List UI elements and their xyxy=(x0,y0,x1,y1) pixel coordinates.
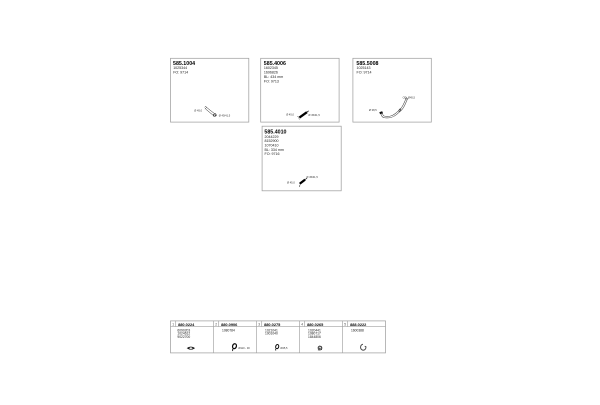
svg-text:1001040: 1001040 xyxy=(265,332,278,336)
svg-text:880.0265: 880.0265 xyxy=(307,322,324,327)
svg-text:Ø45,5: Ø45,5 xyxy=(280,346,288,350)
svg-text:Ø110 - 30: Ø110 - 30 xyxy=(238,346,250,350)
svg-text:2: 2 xyxy=(215,323,217,327)
svg-text:Ø 38,5: Ø 38,5 xyxy=(369,108,377,112)
svg-text:880.0224: 880.0224 xyxy=(178,322,195,327)
svg-text:FO: 9714: FO: 9714 xyxy=(173,70,188,74)
svg-text:3: 3 xyxy=(258,323,260,327)
svg-text:1696826: 1696826 xyxy=(264,71,278,75)
svg-text:4: 4 xyxy=(301,323,303,327)
svg-text:1844806: 1844806 xyxy=(308,335,321,339)
svg-text:FO: 9714: FO: 9714 xyxy=(357,70,372,74)
svg-text:Ø 45,0: Ø 45,0 xyxy=(286,113,294,117)
svg-text:Ø 45/41,5: Ø 45/41,5 xyxy=(219,114,231,118)
svg-text:880.0906: 880.0906 xyxy=(221,322,238,327)
svg-text:1: 1 xyxy=(172,323,174,327)
svg-text:9022700: 9022700 xyxy=(177,335,190,339)
svg-text:Ø 45,0: Ø 45,0 xyxy=(194,108,202,112)
svg-text:Ø 45/41,5: Ø 45/41,5 xyxy=(306,175,318,179)
svg-text:888.0222: 888.0222 xyxy=(350,322,367,327)
svg-text:1602345: 1602345 xyxy=(264,66,278,70)
svg-text:FO: 9713: FO: 9713 xyxy=(264,79,279,83)
svg-text:5: 5 xyxy=(344,323,346,327)
svg-text:1080784: 1080784 xyxy=(222,328,235,332)
svg-text:Ø 45,0: Ø 45,0 xyxy=(287,181,295,185)
svg-text:Ø 45/41,5: Ø 45/41,5 xyxy=(308,113,320,117)
svg-text:1600388: 1600388 xyxy=(351,328,364,332)
svg-text:BL: 434 mm: BL: 434 mm xyxy=(264,75,283,79)
svg-text:880.0275: 880.0275 xyxy=(264,322,281,327)
svg-text:OD: Ø45,5: OD: Ø45,5 xyxy=(403,95,416,99)
svg-text:FO: 9716: FO: 9716 xyxy=(265,152,280,156)
